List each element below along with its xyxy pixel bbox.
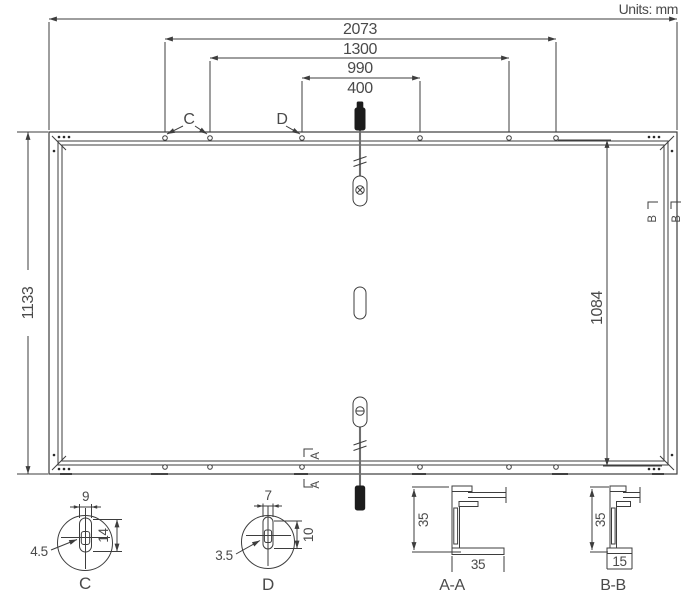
detail-d-radius-leader [236,541,260,555]
top-connector-body [355,108,365,130]
detail-d: 7 10 3.5 D [215,488,316,594]
center-junction-box [354,287,366,319]
section-bb-label: B-B [600,577,625,594]
aa-bottom-flange [452,548,504,555]
dim-text-hole-spacing-outer: 1300 [343,41,377,58]
detail-d-label: D [262,575,274,594]
bb-clamp-lower-lip [617,502,631,507]
bottom-connector-body [355,486,364,510]
detail-d-length-text: 10 [301,528,316,542]
callout-d-label: D [276,111,287,128]
section-bb-width-text: 15 [612,554,626,569]
left-dimension: 1133 [17,132,48,474]
detail-c-width-text: 9 [82,489,89,504]
callout-c-label: C [183,111,194,128]
center-junction-capsule [354,287,366,319]
section-bb: 35 15 B-B [590,486,640,594]
section-aa: 35 35 A-A [412,486,506,594]
detail-c: 9 14 4.5 C [30,489,122,593]
detail-d-radius-text: 3.5 [215,548,233,563]
units-label: Units: mm [619,1,678,17]
dim-text-inner-length: 1084 [589,291,606,325]
bb-wall-hollow [612,508,616,544]
section-b-letter-inner: B [647,215,659,223]
dim-text-overall-length: 2073 [343,21,377,38]
section-bb-height-text: 35 [593,513,608,527]
section-b-letter-outer: B [671,215,683,223]
section-aa-label: A-A [439,577,465,594]
dim-text-overall-width: 1133 [20,286,37,319]
aa-wall-hollow [454,508,458,544]
detail-c-radius-text: 4.5 [30,544,48,559]
aa-clamp-lower-lip [459,502,478,507]
detail-c-radius-leader [51,540,77,551]
bb-bottom-flange [607,548,632,554]
drawing-canvas: Units: mm 2073 1300 990 400 [0,0,692,604]
dim-text-hole-spacing-inner: 400 [347,80,373,97]
aa-clamp-top-lip [452,486,472,492]
detail-d-width-text: 7 [264,488,271,503]
callouts: C D [167,111,300,134]
dim-text-hole-spacing-middle: 990 [347,60,373,77]
section-aa-height-text: 35 [416,513,431,527]
section-a-letter-top: A [310,452,322,460]
detail-c-length-text: 14 [96,528,111,543]
section-aa-width-text: 35 [471,557,485,572]
solar-panel-engineering-drawing: Units: mm 2073 1300 990 400 [0,0,692,604]
bb-clamp-top-lip [610,486,626,492]
section-a-letter-bottom: A [310,481,322,489]
detail-c-label: C [79,574,91,593]
